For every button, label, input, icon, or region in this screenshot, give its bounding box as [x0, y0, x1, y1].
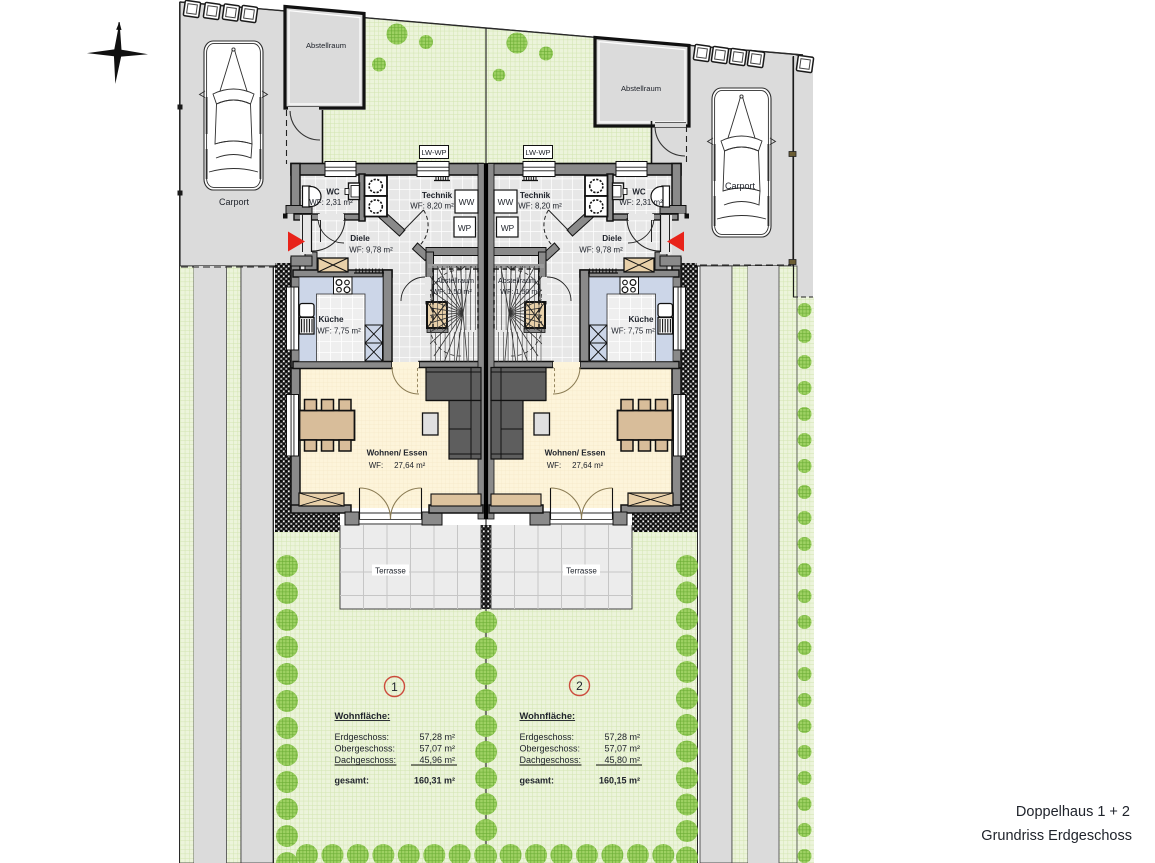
svg-text:WP: WP	[501, 223, 515, 233]
svg-text:Doppelhaus 1 + 2: Doppelhaus 1 + 2	[1016, 804, 1130, 820]
svg-text:WF: 8,20 m²: WF: 8,20 m²	[410, 202, 454, 211]
svg-text:LW-WP: LW-WP	[525, 148, 550, 157]
svg-text:WW: WW	[498, 197, 514, 207]
svg-text:Grundriss Erdgeschoss: Grundriss Erdgeschoss	[981, 828, 1132, 844]
svg-text:160,31 m²: 160,31 m²	[414, 776, 455, 786]
svg-text:160,15 m²: 160,15 m²	[599, 776, 640, 786]
svg-text:45,96 m²: 45,96 m²	[419, 755, 455, 765]
svg-text:Terrasse: Terrasse	[375, 567, 406, 576]
svg-text:WF: 2,31 m²: WF: 2,31 m²	[619, 198, 663, 207]
svg-text:WC: WC	[632, 188, 646, 197]
svg-text:Wohnfläche:: Wohnfläche:	[335, 711, 391, 721]
svg-text:WC: WC	[326, 188, 340, 197]
svg-text:Obergeschoss:: Obergeschoss:	[335, 744, 396, 754]
svg-text:2: 2	[576, 679, 583, 693]
svg-text:WW: WW	[459, 197, 475, 207]
svg-text:Wohnen/ Essen: Wohnen/ Essen	[545, 449, 606, 458]
svg-text:Technik: Technik	[520, 191, 551, 200]
svg-text:1: 1	[391, 680, 398, 694]
svg-text:Küche: Küche	[318, 315, 343, 324]
svg-text:Küche: Küche	[628, 315, 653, 324]
svg-text:WF: 9,78 m²: WF: 9,78 m²	[349, 246, 393, 255]
svg-text:WF: 9,78 m²: WF: 9,78 m²	[579, 246, 623, 255]
svg-text:WF: 8,20 m²: WF: 8,20 m²	[518, 202, 562, 211]
svg-text:57,28 m²: 57,28 m²	[419, 732, 455, 742]
svg-text:Wohnen/ Essen: Wohnen/ Essen	[367, 449, 428, 458]
svg-text:Obergeschoss:: Obergeschoss:	[520, 744, 581, 754]
svg-text:WF: 1,50 m²: WF: 1,50 m²	[500, 287, 540, 296]
svg-text:gesamt:: gesamt:	[520, 776, 555, 786]
svg-text:Diele: Diele	[602, 234, 622, 243]
svg-text:57,28 m²: 57,28 m²	[604, 732, 640, 742]
svg-text:45,80 m²: 45,80 m²	[604, 755, 640, 765]
svg-text:57,07 m²: 57,07 m²	[604, 744, 640, 754]
svg-text:WF: 2,31 m²: WF: 2,31 m²	[309, 198, 353, 207]
svg-text:Abstellraum: Abstellraum	[498, 276, 536, 285]
svg-text:WF: 27,64 m²: WF: 27,64 m²	[547, 461, 604, 470]
svg-text:Wohnfläche:: Wohnfläche:	[520, 711, 576, 721]
svg-text:Dachgeschoss:: Dachgeschoss:	[335, 755, 397, 765]
svg-text:WF: 27,64 m²: WF: 27,64 m²	[369, 461, 426, 470]
svg-text:57,07 m²: 57,07 m²	[419, 744, 455, 754]
svg-text:Terrasse: Terrasse	[566, 567, 597, 576]
svg-text:Dachgeschoss:: Dachgeschoss:	[520, 755, 582, 765]
svg-text:WF: 1,50 m²: WF: 1,50 m²	[432, 287, 472, 296]
svg-text:Abstellraum: Abstellraum	[436, 276, 474, 285]
svg-text:WF: 7,75 m²: WF: 7,75 m²	[611, 327, 655, 336]
svg-text:Erdgeschoss:: Erdgeschoss:	[520, 732, 575, 742]
svg-text:Carport: Carport	[725, 181, 756, 191]
svg-text:Abstellraum: Abstellraum	[621, 84, 661, 93]
svg-text:Abstellraum: Abstellraum	[306, 41, 346, 50]
svg-text:WP: WP	[458, 223, 472, 233]
svg-text:Carport: Carport	[219, 197, 250, 207]
svg-text:Erdgeschoss:: Erdgeschoss:	[335, 732, 390, 742]
svg-text:WF: 7,75 m²: WF: 7,75 m²	[317, 327, 361, 336]
svg-text:LW-WP: LW-WP	[421, 148, 446, 157]
svg-text:Technik: Technik	[422, 191, 453, 200]
svg-text:gesamt:: gesamt:	[335, 776, 370, 786]
svg-text:Diele: Diele	[350, 234, 370, 243]
